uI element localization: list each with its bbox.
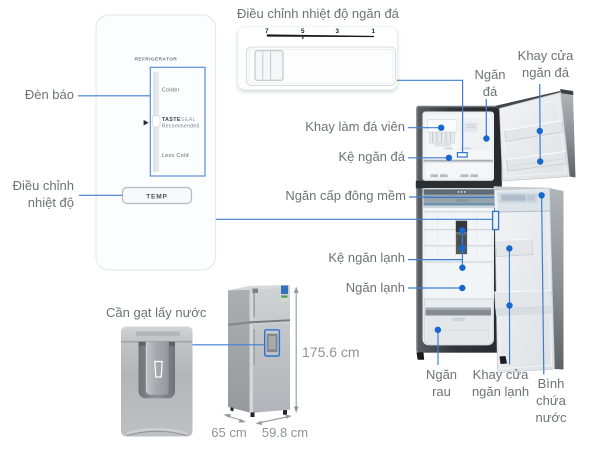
svg-text:TEMP: TEMP: [146, 193, 168, 200]
svg-text:REFRIGERATOR: REFRIGERATOR: [135, 57, 178, 63]
svg-text:Less Cold: Less Cold: [162, 153, 189, 159]
svg-text:3: 3: [336, 28, 340, 35]
svg-text:1: 1: [372, 28, 376, 35]
svg-text:Recommended: Recommended: [162, 124, 200, 130]
svg-text:TASTESEAL: TASTESEAL: [162, 117, 196, 123]
svg-text:5: 5: [301, 28, 305, 35]
svg-text:7: 7: [265, 28, 269, 35]
svg-text:Colder: Colder: [162, 88, 180, 94]
